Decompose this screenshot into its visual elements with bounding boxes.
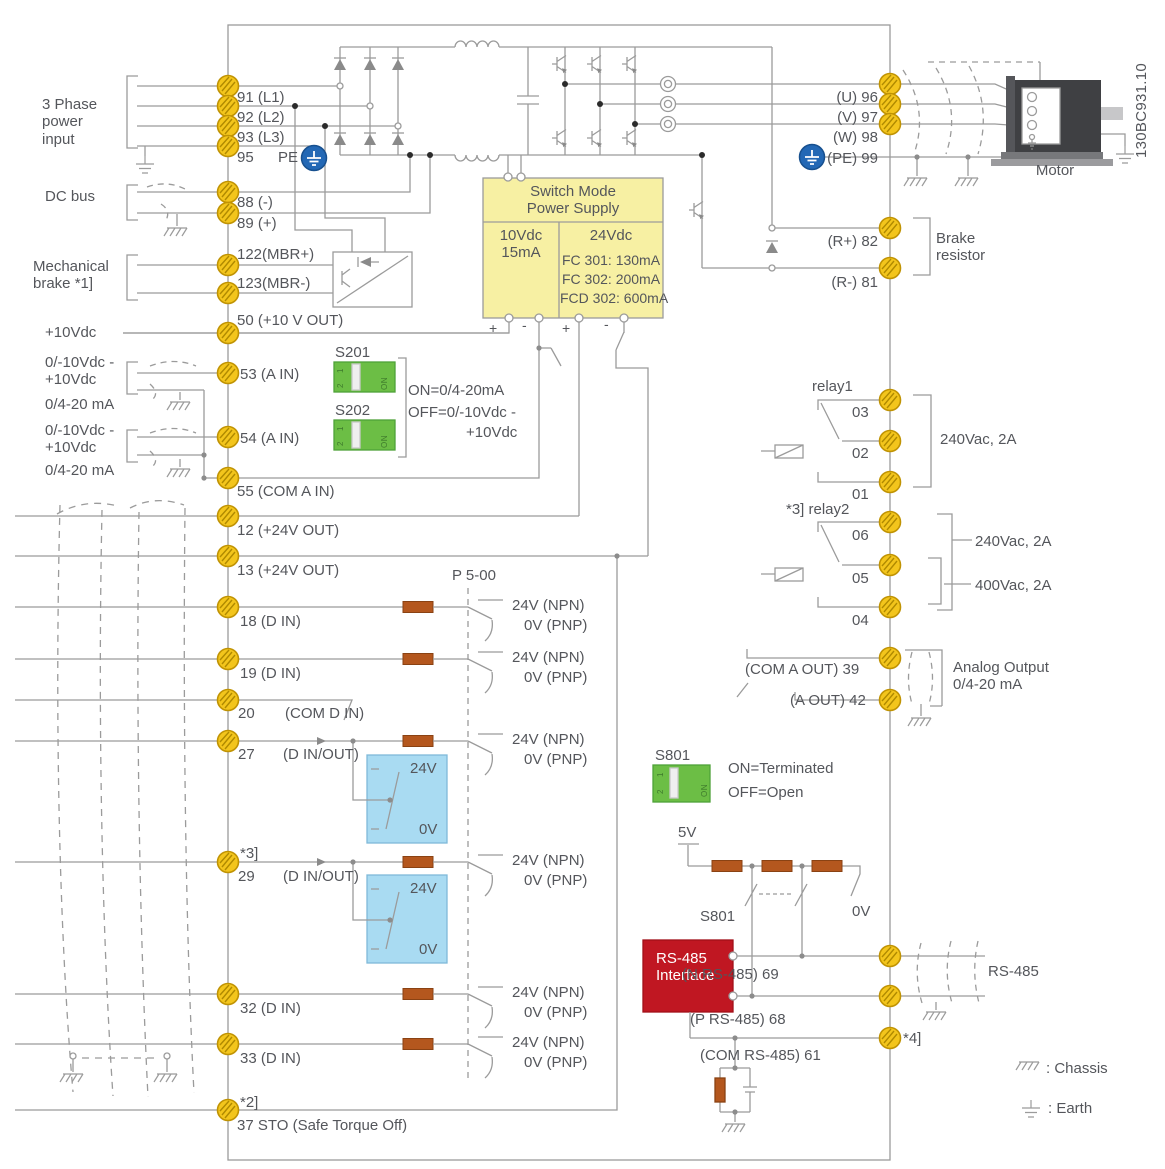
- motor-label: Motor: [1000, 162, 1110, 179]
- contact-01-label: 01: [852, 486, 869, 503]
- relay1-label: relay1: [812, 378, 853, 395]
- npn-label-18: 24V (NPN): [512, 597, 585, 614]
- pnp-label-19: 0V (PNP): [524, 669, 587, 686]
- brake-resistor-label: Brake resistor: [936, 230, 985, 265]
- terminal-20-label: 20: [238, 705, 255, 722]
- smps-pin1-plus: +: [489, 320, 497, 336]
- power-input-label: 3 Phase power input: [42, 96, 97, 148]
- terminal-92-label: 92 (L2): [237, 109, 285, 126]
- dc-bus-label: DC bus: [45, 188, 95, 205]
- note-3-label: *3]: [240, 845, 258, 862]
- box1-0v-label: 0V: [419, 821, 437, 838]
- s201-off-meaning: OFF=0/-10Vdc -: [408, 404, 516, 421]
- legend-chassis-label: : Chassis: [1046, 1060, 1108, 1077]
- terminal-27-label: 27: [238, 746, 255, 763]
- terminal-95-label: 95: [237, 149, 254, 166]
- ain53-current-range: 0/4-20 mA: [45, 396, 114, 413]
- npn-label-29: 24V (NPN): [512, 852, 585, 869]
- terminal-96-label: (U) 96: [760, 89, 878, 106]
- legend-symbols: [1016, 1062, 1040, 1117]
- s202-dip-on-icon: ON: [381, 435, 389, 448]
- note-4-label: *4]: [903, 1030, 921, 1047]
- shield-clamps: [60, 1053, 177, 1082]
- pe-label: PE: [278, 149, 298, 166]
- smps-pin4-minus: -: [604, 316, 609, 332]
- contact-05-label: 05: [852, 570, 869, 587]
- relay2-rating-400-label: 400Vac, 2A: [975, 577, 1051, 594]
- terminal-39-label: (COM A OUT) 39: [745, 661, 859, 678]
- smps-pin3-plus: +: [562, 320, 570, 336]
- terminal-18-label: 18 (D IN): [240, 613, 301, 630]
- s202-dip-1: 1: [337, 426, 345, 431]
- rail-0v-label: 0V: [852, 903, 870, 920]
- s801-dip-on-icon: ON: [701, 784, 709, 797]
- terminal-68-label: (P RS-485) 68: [690, 1011, 786, 1028]
- contact-02-label: 02: [852, 445, 869, 462]
- terminal-99-label: (PE) 99: [760, 150, 878, 167]
- s201-dip-on-icon: ON: [381, 377, 389, 390]
- pnp-label-29: 0V (PNP): [524, 872, 587, 889]
- contact-06-label: 06: [852, 527, 869, 544]
- s801-dip-2: 2: [657, 789, 665, 794]
- terminal-88-label: 88 (-): [237, 194, 273, 211]
- s801-off-meaning: OFF=Open: [728, 784, 803, 801]
- contact-04-label: 04: [852, 612, 869, 629]
- s201-dip-1: 1: [337, 368, 345, 373]
- s202-label: S202: [335, 402, 370, 419]
- terminal-20-com-label: (COM D IN): [285, 705, 364, 722]
- box2-0v-label: 0V: [419, 941, 437, 958]
- rs485-cable-label: RS-485: [988, 963, 1039, 980]
- ain53-voltage-range: 0/-10Vdc - +10Vdc: [45, 354, 114, 389]
- pnp-label-32: 0V (PNP): [524, 1004, 587, 1021]
- s801-on-meaning: ON=Terminated: [728, 760, 833, 777]
- ain54-current-range: 0/4-20 mA: [45, 462, 114, 479]
- terminal-123-label: 123(MBR-): [237, 275, 310, 292]
- terminal-93-label: 93 (L3): [237, 129, 285, 146]
- s801-label: S801: [655, 747, 690, 764]
- npn-label-32: 24V (NPN): [512, 984, 585, 1001]
- terminal-12-label: 12 (+24V OUT): [237, 522, 339, 539]
- sto-wiring: [15, 553, 620, 1110]
- s201-dip-2: 2: [337, 383, 345, 388]
- relay2-label: *3] relay2: [786, 501, 849, 518]
- terminal-69-label: (N RS-485) 69: [682, 966, 779, 983]
- box2-24v-label: 24V: [410, 880, 437, 897]
- pnp-label-27: 0V (PNP): [524, 751, 587, 768]
- terminal-97-label: (V) 97: [760, 109, 878, 126]
- left-shielded-cable: [57, 501, 194, 1097]
- analog-output-label: Analog Output 0/4-20 mA: [953, 659, 1049, 694]
- dc-bus-section: [127, 184, 228, 236]
- s201-on-meaning: ON=0/4-20mA: [408, 382, 504, 399]
- pnp-label-33: 0V (PNP): [524, 1054, 587, 1071]
- note-2-label: *2]: [240, 1094, 258, 1111]
- terminal-29-label: 29: [238, 868, 255, 885]
- s801-contact-label: S801: [700, 908, 735, 925]
- s202-dip-2: 2: [337, 441, 345, 446]
- terminal-32-label: 32 (D IN): [240, 1000, 301, 1017]
- contact-03-label: 03: [852, 404, 869, 421]
- smps-10v-cell: 10Vdc 15mA: [483, 227, 559, 262]
- terminal-89-label: 89 (+): [237, 215, 277, 232]
- terminal-122-label: 122(MBR+): [237, 246, 314, 263]
- terminal-42-label: (A OUT) 42: [790, 692, 866, 709]
- relay1: [761, 395, 931, 487]
- ain54-voltage-range: 0/-10Vdc - +10Vdc: [45, 422, 114, 457]
- terminal-50-label: 50 (+10 V OUT): [237, 312, 343, 329]
- terminal-91-label: 91 (L1): [237, 89, 285, 106]
- supply-5v-label: 5V: [678, 824, 696, 841]
- terminal-19-label: 19 (D IN): [240, 665, 301, 682]
- pe-earth-terminals: [302, 145, 825, 171]
- terminal-13-label: 13 (+24V OUT): [237, 562, 339, 579]
- terminal-54-label: 54 (A IN): [240, 430, 299, 447]
- s201-label: S201: [335, 344, 370, 361]
- s801-dip-1: 1: [657, 772, 665, 777]
- npn-label-33: 24V (NPN): [512, 1034, 585, 1051]
- terminal-37-label: 37 STO (Safe Torque Off): [237, 1117, 407, 1134]
- relay2-rating-240-label: 240Vac, 2A: [975, 533, 1051, 550]
- terminal-81-label: (R-) 81: [760, 274, 878, 291]
- doc-code-label: 130BC931.10: [1133, 63, 1150, 158]
- terminal-98-label: (W) 98: [760, 129, 878, 146]
- smps-24v-cell: 24Vdc: [559, 227, 663, 244]
- terminal-27-io-label: (D IN/OUT): [283, 746, 359, 763]
- mech-brake-label: Mechanical brake *1]: [33, 258, 109, 293]
- terminal-82-label: (R+) 82: [760, 233, 878, 250]
- s201-off-meaning-2: +10Vdc: [466, 424, 517, 441]
- p500-label: P 5-00: [452, 567, 496, 584]
- wiring-diagram: 3 Phase power input DC bus Mechanical br…: [0, 0, 1165, 1169]
- smps-fc302: FC 302: 200mA: [562, 271, 660, 287]
- brake-resistor-bracket: [913, 218, 930, 275]
- pnp-label-18: 0V (PNP): [524, 617, 587, 634]
- npn-label-19: 24V (NPN): [512, 649, 585, 666]
- terminal-55-label: 55 (COM A IN): [237, 483, 335, 500]
- terminal-33-label: 33 (D IN): [240, 1050, 301, 1067]
- terminal-29-io-label: (D IN/OUT): [283, 868, 359, 885]
- smps-fc301: FC 301: 130mA: [562, 252, 660, 268]
- npn-label-27: 24V (NPN): [512, 731, 585, 748]
- box1-24v-label: 24V: [410, 760, 437, 777]
- relay1-rating-label: 240Vac, 2A: [940, 431, 1016, 448]
- smps-fcd302: FCD 302: 600mA: [560, 290, 668, 306]
- terminal-61-label: (COM RS-485) 61: [700, 1047, 821, 1064]
- smps-title: Switch Mode Power Supply: [483, 183, 663, 218]
- plus10v-label: +10Vdc: [45, 324, 96, 341]
- terminal-53-label: 53 (A IN): [240, 366, 299, 383]
- legend-earth-label: : Earth: [1048, 1100, 1092, 1117]
- smps-pin2-minus: -: [522, 317, 527, 333]
